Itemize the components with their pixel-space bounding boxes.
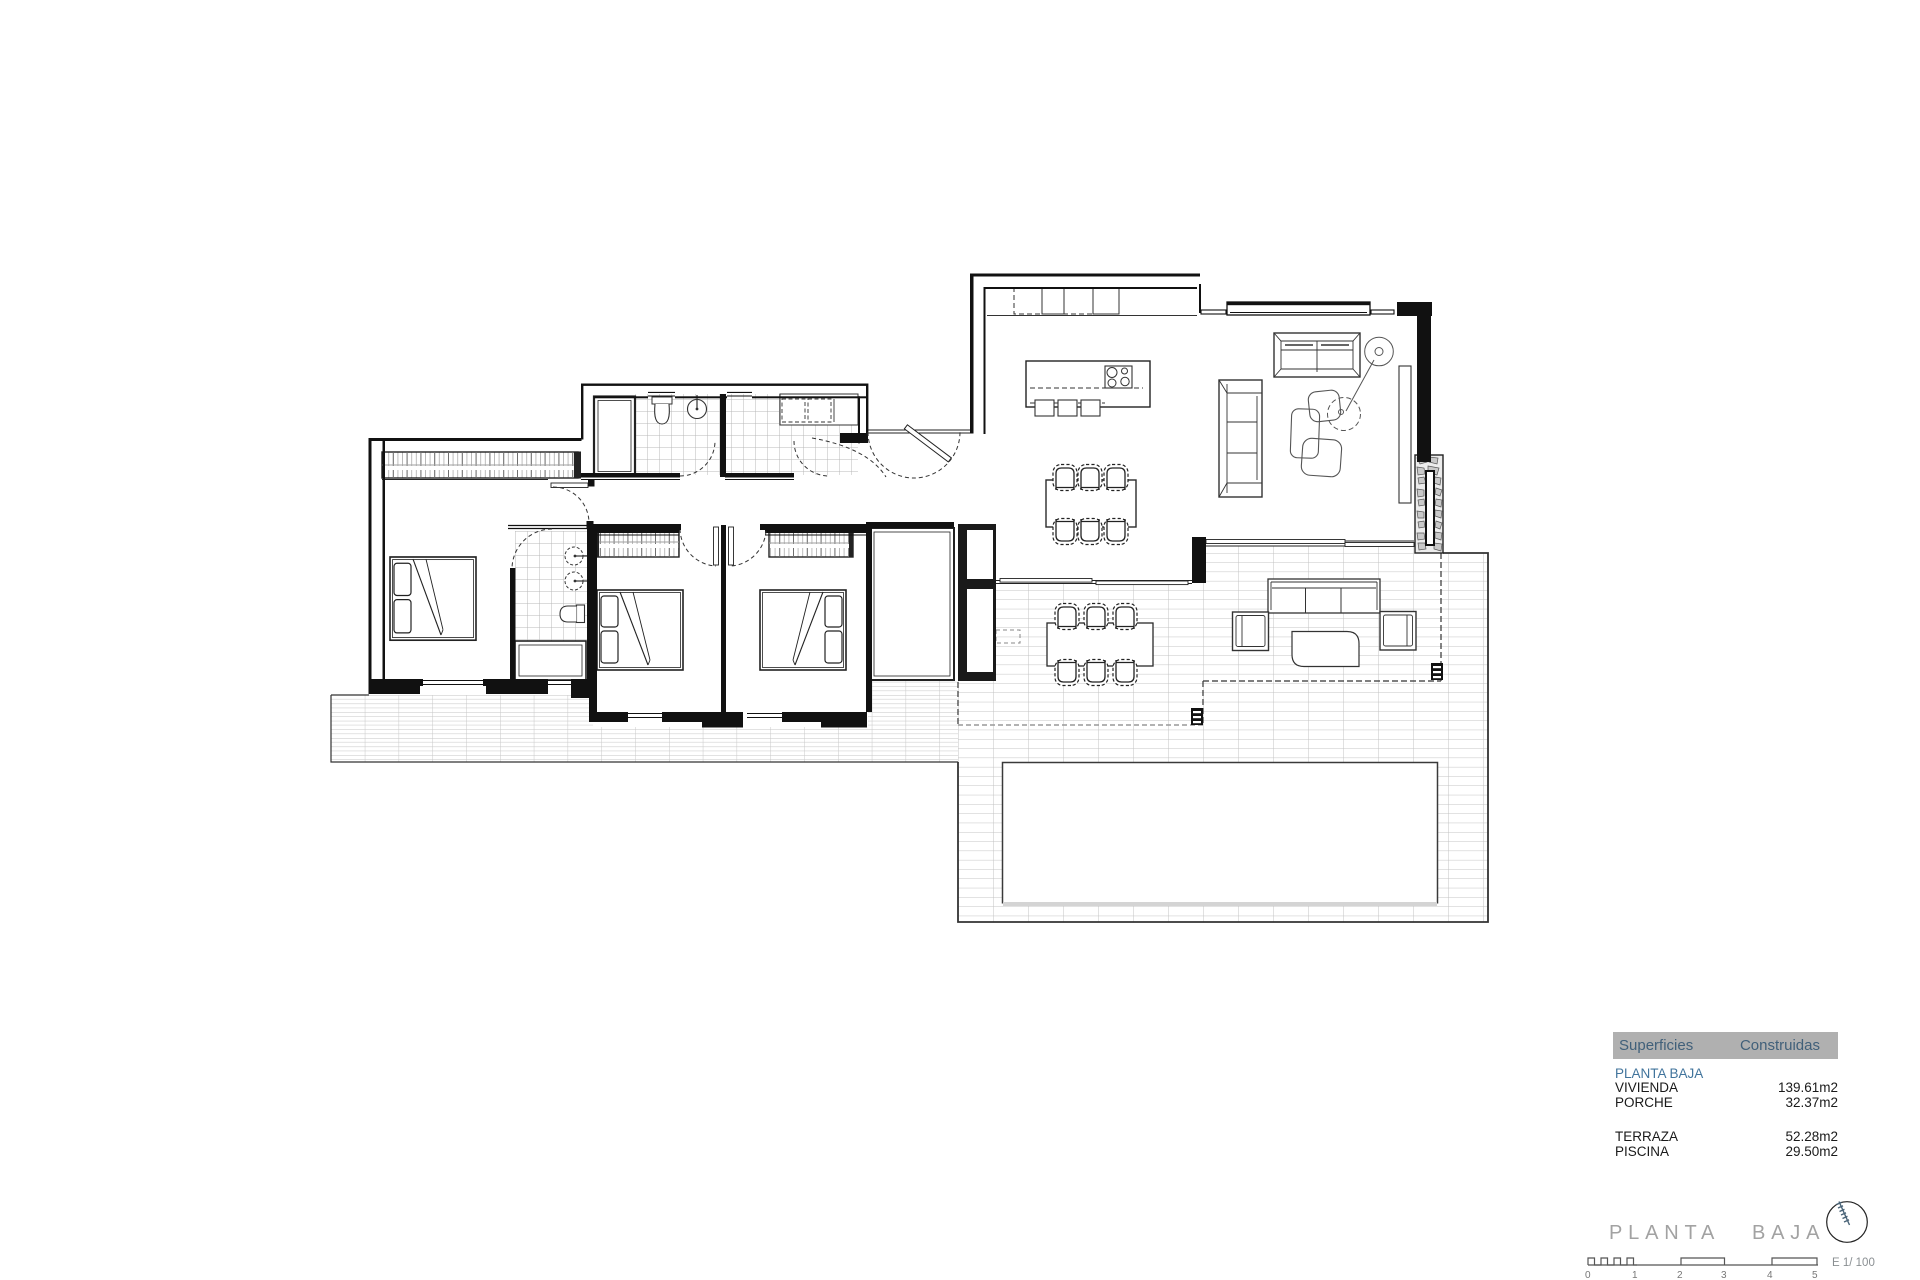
svg-text:BAJA: BAJA: [1752, 1222, 1825, 1244]
svg-text:4: 4: [1767, 1270, 1773, 1280]
svg-text:5: 5: [1812, 1270, 1818, 1280]
svg-text:PORCHE: PORCHE: [1615, 1095, 1673, 1110]
svg-text:0: 0: [1585, 1270, 1591, 1280]
svg-text:3: 3: [1721, 1270, 1727, 1280]
svg-text:E 1/ 100: E 1/ 100: [1832, 1257, 1875, 1269]
svg-text:2: 2: [1677, 1270, 1683, 1280]
svg-text:VIVIENDA: VIVIENDA: [1615, 1080, 1678, 1095]
svg-text:29.50m2: 29.50m2: [1785, 1144, 1838, 1159]
svg-text:1: 1: [1632, 1270, 1638, 1280]
svg-text:TERRAZA: TERRAZA: [1615, 1129, 1678, 1144]
svg-text:PLANTA BAJA: PLANTA BAJA: [1615, 1066, 1703, 1081]
svg-text:PISCINA: PISCINA: [1615, 1144, 1669, 1159]
svg-text:32.37m2: 32.37m2: [1785, 1095, 1838, 1110]
svg-text:PLANTA: PLANTA: [1609, 1222, 1720, 1244]
svg-text:52.28m2: 52.28m2: [1785, 1129, 1838, 1144]
svg-text:Construidas: Construidas: [1740, 1037, 1820, 1054]
svg-text:139.61m2: 139.61m2: [1778, 1080, 1838, 1095]
svg-text:Superficies: Superficies: [1619, 1037, 1693, 1054]
